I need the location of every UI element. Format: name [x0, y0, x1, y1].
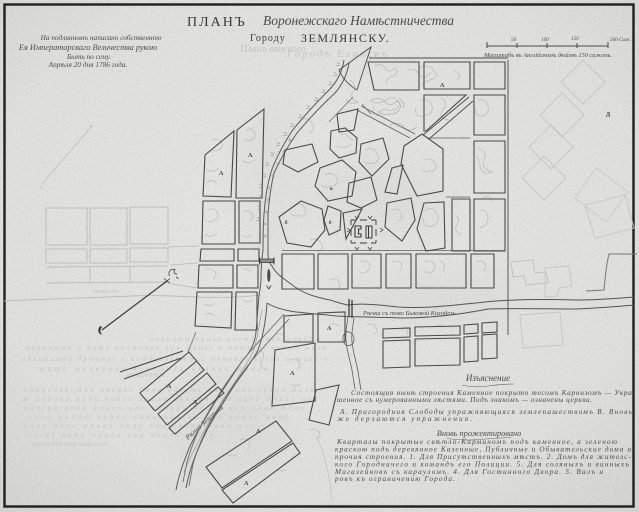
svg-text:А: А — [290, 371, 295, 377]
svg-text:А: А — [256, 429, 261, 435]
svg-text:Рѣчка ана: Рѣчка ана — [91, 289, 119, 295]
svg-text:А: А — [244, 481, 249, 487]
svg-text:Ея Императорскаго Величества р: Ея Императорскаго Величества рукою — [18, 43, 157, 52]
svg-text:А: А — [248, 153, 253, 159]
svg-text:150: 150 — [571, 36, 579, 42]
svg-text:А: А — [167, 384, 172, 390]
svg-text:500 Саж.: 500 Саж. — [610, 37, 631, 43]
svg-text:Воронежскаго Намѣстничества: Воронежскаго Намѣстничества — [263, 13, 454, 28]
svg-text:Изъяснение: Изъяснение — [465, 373, 510, 383]
svg-text:обнинатва бртвняг и котдолвекж: обнинатва бртвняг и котдолвекживи теинвл… — [22, 355, 328, 363]
svg-text:А: А — [219, 171, 224, 177]
svg-text:в: в — [330, 187, 333, 192]
svg-text:Рѣчка съ тово Быковой Колодезь: Рѣчка съ тово Быковой Колодезь — [362, 310, 456, 317]
svg-text:ПЛАНЪ: ПЛАНЪ — [187, 15, 247, 30]
svg-text:100: 100 — [541, 37, 549, 43]
svg-text:шенное съ нумерованными лѣстям: шенное съ нумерованными лѣстями. Подъ зн… — [337, 395, 592, 404]
svg-text:наало вíяя вани внал иало: наало вíяя вани внал иало — [32, 440, 108, 448]
svg-text:Апрѣля 20 дня 1786 года.: Апрѣля 20 дня 1786 года. — [48, 60, 128, 69]
svg-text:50: 50 — [511, 37, 517, 43]
svg-text:Городу: Городу — [250, 33, 286, 44]
svg-text:На подлинномъ написано собстве: На подлинномъ написано собственною — [40, 33, 162, 42]
svg-text:ровъ къ ограничению Города.: ровъ къ ограничению Города. — [334, 474, 455, 483]
svg-text:А: А — [327, 326, 332, 332]
svg-text:ЗЕМЛЯНСКУ.: ЗЕМЛЯНСКУ. — [301, 31, 390, 45]
svg-text:А: А — [440, 83, 445, 89]
svg-text:А: А — [193, 400, 198, 406]
